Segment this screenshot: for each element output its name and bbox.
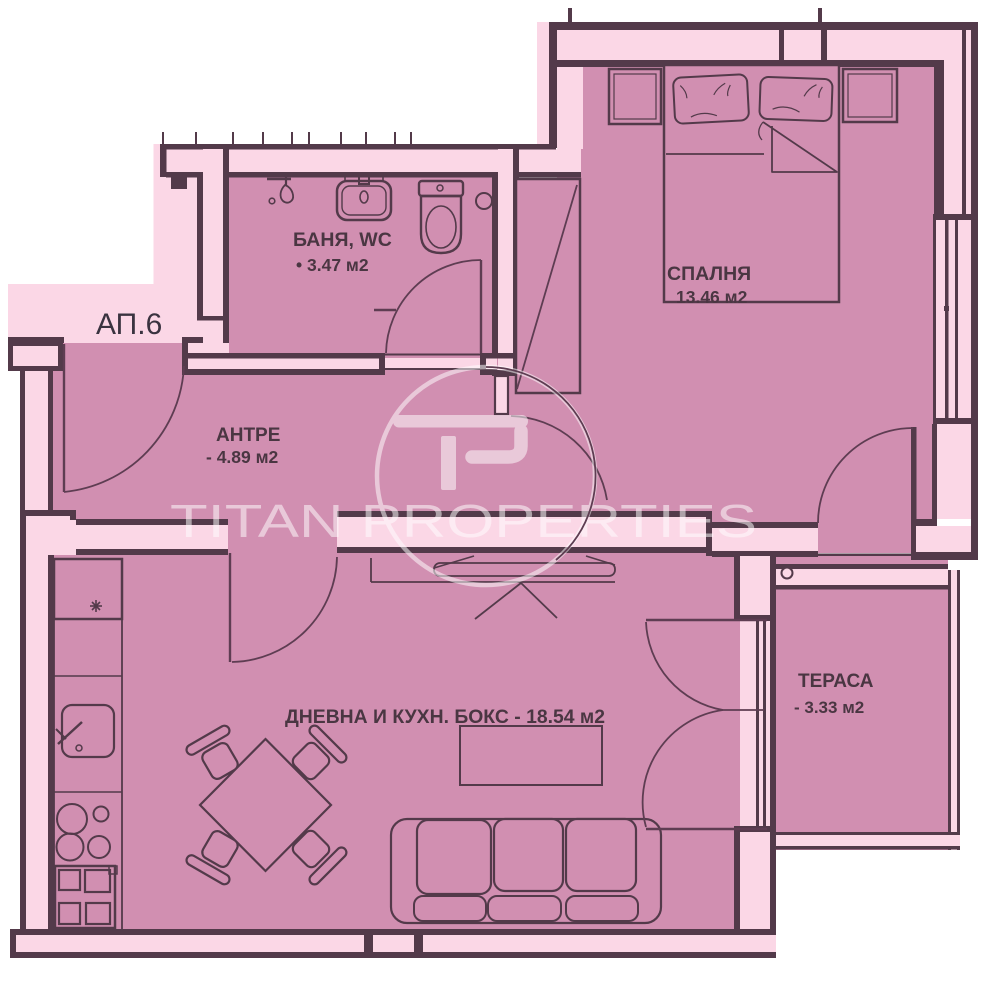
- svg-text:ДНЕВНА И КУХН. БОКС - 18.54 м2: ДНЕВНА И КУХН. БОКС - 18.54 м2: [285, 706, 605, 728]
- svg-text:СПАЛНЯ: СПАЛНЯ: [667, 263, 751, 285]
- svg-text:- 4.89 м2: - 4.89 м2: [206, 447, 279, 467]
- svg-text:13.46 м2: 13.46 м2: [676, 287, 748, 307]
- svg-text:TITAN PROPERTIES: TITAN PROPERTIES: [170, 495, 757, 547]
- svg-text:• 3.47 м2: • 3.47 м2: [296, 255, 369, 275]
- svg-text:- 3.33 м2: - 3.33 м2: [794, 698, 864, 717]
- svg-text:ТЕРАСА: ТЕРАСА: [798, 671, 874, 692]
- svg-text:АП.6: АП.6: [96, 308, 162, 341]
- svg-text:АНТРЕ: АНТРЕ: [216, 425, 280, 446]
- svg-text:БАНЯ, WC: БАНЯ, WC: [293, 229, 392, 251]
